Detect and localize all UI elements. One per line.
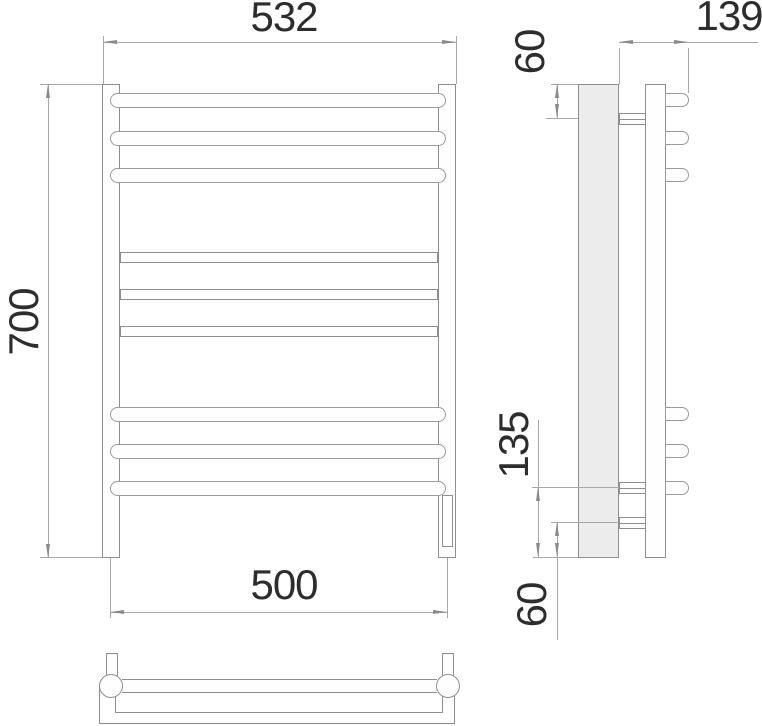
arrowhead-up xyxy=(536,487,540,501)
side-rail-stub-2 xyxy=(665,131,689,145)
front-rail-round-6 xyxy=(110,481,446,496)
side-rail-stub-6 xyxy=(665,481,689,495)
dim-line xyxy=(103,42,456,43)
dim-overall-depth-label: 139 xyxy=(695,0,762,37)
extension-line xyxy=(688,48,689,93)
front-rail-round-1 xyxy=(110,93,446,108)
dim-line xyxy=(48,84,49,558)
arrowhead-down xyxy=(555,104,559,118)
front-rail-round-2 xyxy=(110,131,446,146)
arrowhead-right xyxy=(674,40,688,44)
arrowhead-down xyxy=(536,543,540,557)
bracket-flange-line xyxy=(620,488,645,489)
side-rail-stub-5 xyxy=(665,444,689,458)
top-view-bracket-stub-left xyxy=(106,653,118,676)
extension-line xyxy=(532,487,619,488)
arrowhead-left xyxy=(103,40,117,44)
arrowhead-down xyxy=(46,544,50,558)
side-bracket-lower-2 xyxy=(619,517,646,529)
top-view-bracket-stub-right xyxy=(442,653,454,676)
extension-line xyxy=(456,36,457,84)
top-view-inner-tube xyxy=(115,690,443,713)
front-rail-round-4 xyxy=(110,407,446,422)
dim-mounting-width-label: 500 xyxy=(250,564,317,606)
arrowhead-left xyxy=(619,40,633,44)
extension-line xyxy=(546,118,578,119)
front-rail-flat-1 xyxy=(120,252,438,263)
arrowhead-right xyxy=(442,40,456,44)
top-view-crossbar xyxy=(122,679,437,693)
arrowhead-left xyxy=(110,610,124,614)
technical-drawing-canvas: 532 700 500 139 60 xyxy=(0,0,762,726)
side-bracket-lower-1 xyxy=(619,482,646,494)
dim-line xyxy=(557,522,558,640)
extension-line xyxy=(619,48,620,84)
extension-line xyxy=(533,557,578,558)
side-bracket-top xyxy=(619,113,646,125)
dim-overall-height-label: 700 xyxy=(3,288,45,355)
side-rail-stub-3 xyxy=(665,168,689,182)
dim-top-offset-label: 60 xyxy=(509,30,551,75)
side-rail-stub-1 xyxy=(665,93,689,107)
side-vertical-profile xyxy=(645,84,666,558)
dim-overall-width-label: 532 xyxy=(250,0,317,38)
front-rail-flat-2 xyxy=(120,289,438,300)
arrowhead-up xyxy=(46,84,50,98)
arrowhead-up xyxy=(555,522,559,536)
extension-line xyxy=(551,522,619,523)
arrowhead-up xyxy=(555,84,559,98)
dim-line xyxy=(619,42,758,43)
dim-line xyxy=(110,612,447,613)
side-rail-stub-4 xyxy=(665,407,689,421)
dim-bottom-offset-label: 60 xyxy=(511,583,553,628)
bracket-flange-line xyxy=(620,119,645,120)
arrowhead-right xyxy=(433,610,447,614)
extension-line xyxy=(110,558,111,618)
front-rail-flat-3 xyxy=(120,326,438,337)
front-rail-round-3 xyxy=(110,168,446,183)
top-view-post-circle-right xyxy=(436,674,460,698)
top-view-post-circle-left xyxy=(99,674,123,698)
arrowhead-down xyxy=(555,543,559,557)
front-rail-round-5 xyxy=(110,444,446,459)
dim-lower-span-label: 135 xyxy=(493,411,535,478)
extension-line xyxy=(447,558,448,618)
bracket-flange-line xyxy=(620,523,645,524)
heating-element-box xyxy=(442,495,453,547)
